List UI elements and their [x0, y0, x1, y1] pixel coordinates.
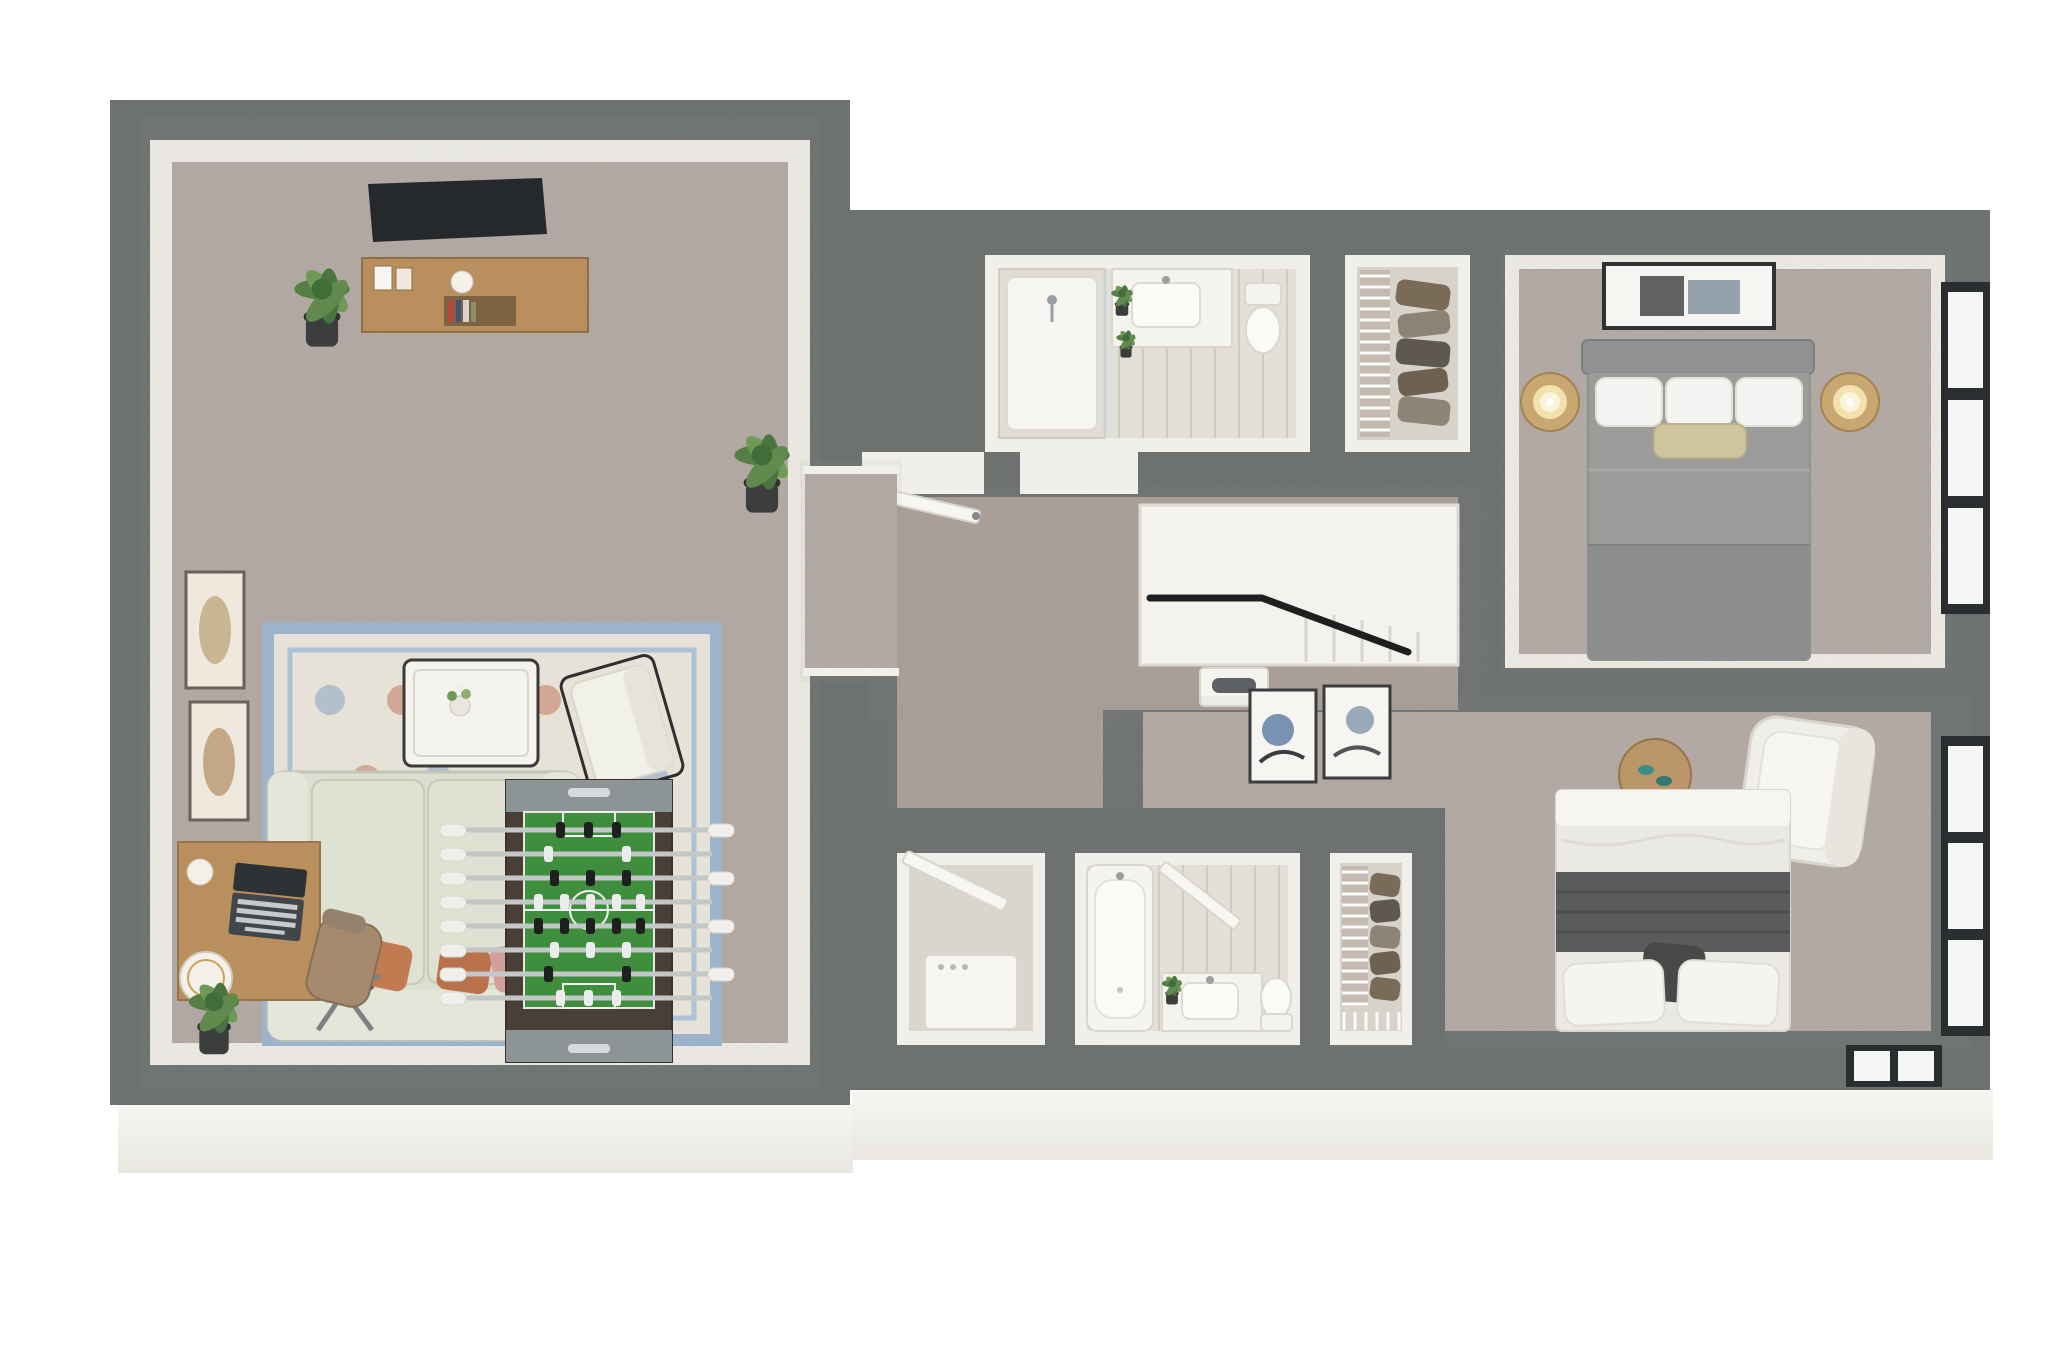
bathroom-2 — [1075, 853, 1300, 1045]
pillow — [1666, 378, 1732, 426]
floor-plan-stage — [0, 0, 2048, 1364]
wire-shelving — [1360, 270, 1390, 437]
pillow — [1596, 378, 1662, 426]
faucet — [1162, 276, 1170, 284]
framed-art-above-bed — [1604, 264, 1774, 328]
faucet — [1206, 976, 1214, 984]
book — [471, 302, 476, 322]
bedroom-1 — [1505, 255, 1945, 668]
console-frame-decor — [374, 266, 392, 290]
toilet-2 — [1261, 978, 1292, 1031]
toilet — [1245, 283, 1281, 353]
bathroom-1-opening — [1020, 452, 1138, 494]
bed-1 — [1582, 340, 1814, 660]
book — [448, 300, 454, 322]
coffee-table — [404, 660, 538, 766]
nightstand-right — [1821, 373, 1879, 431]
lamp-right — [1833, 385, 1867, 419]
tub-faucet — [1116, 872, 1124, 880]
console-vase — [451, 271, 473, 293]
bathroom-1-vanity — [1111, 269, 1232, 358]
shoe — [1638, 765, 1654, 775]
rec-room-hall-opening — [803, 466, 899, 676]
wall-tv — [368, 178, 547, 242]
book — [463, 300, 469, 322]
stairwell — [1140, 505, 1458, 665]
door-handle — [972, 512, 980, 520]
bathroom-1 — [985, 255, 1310, 452]
desk-vase — [187, 859, 213, 885]
bathroom-2-vanity — [1162, 973, 1262, 1031]
hanging-clothes — [1394, 278, 1451, 426]
laptop — [228, 862, 307, 941]
hanging-clothes — [1369, 872, 1402, 1002]
pillow — [1736, 378, 1802, 426]
right-wing — [850, 210, 1990, 1090]
sink — [1132, 283, 1200, 327]
rec-room — [110, 100, 850, 1105]
shower-head — [1047, 295, 1057, 305]
folded-duvet-edge — [1556, 790, 1790, 826]
pillow — [1676, 959, 1779, 1026]
bedroom-2-bottom-window — [1846, 1045, 1942, 1087]
floor-plan-svg — [0, 0, 2048, 1364]
art-motif — [203, 728, 235, 796]
bedroom-2-window — [1941, 736, 1990, 1036]
walk-in-shower — [999, 269, 1105, 438]
console-open-shelf — [444, 296, 516, 326]
closet-2 — [1330, 853, 1412, 1045]
bedroom-1-window — [1941, 282, 1990, 614]
bathtub — [1087, 865, 1153, 1031]
nightstand-left — [1521, 373, 1579, 431]
shoe — [1656, 776, 1672, 786]
sink — [1182, 983, 1238, 1019]
utility-closet — [897, 851, 1045, 1045]
bed-2 — [1556, 790, 1790, 1031]
book — [456, 300, 461, 322]
pillow — [1562, 959, 1665, 1026]
console-frame-decor-2 — [396, 268, 412, 290]
accent-pillow-tan — [1654, 424, 1746, 458]
art-motif — [199, 596, 231, 664]
lamp-left — [1533, 385, 1567, 419]
closet-1 — [1345, 255, 1470, 452]
